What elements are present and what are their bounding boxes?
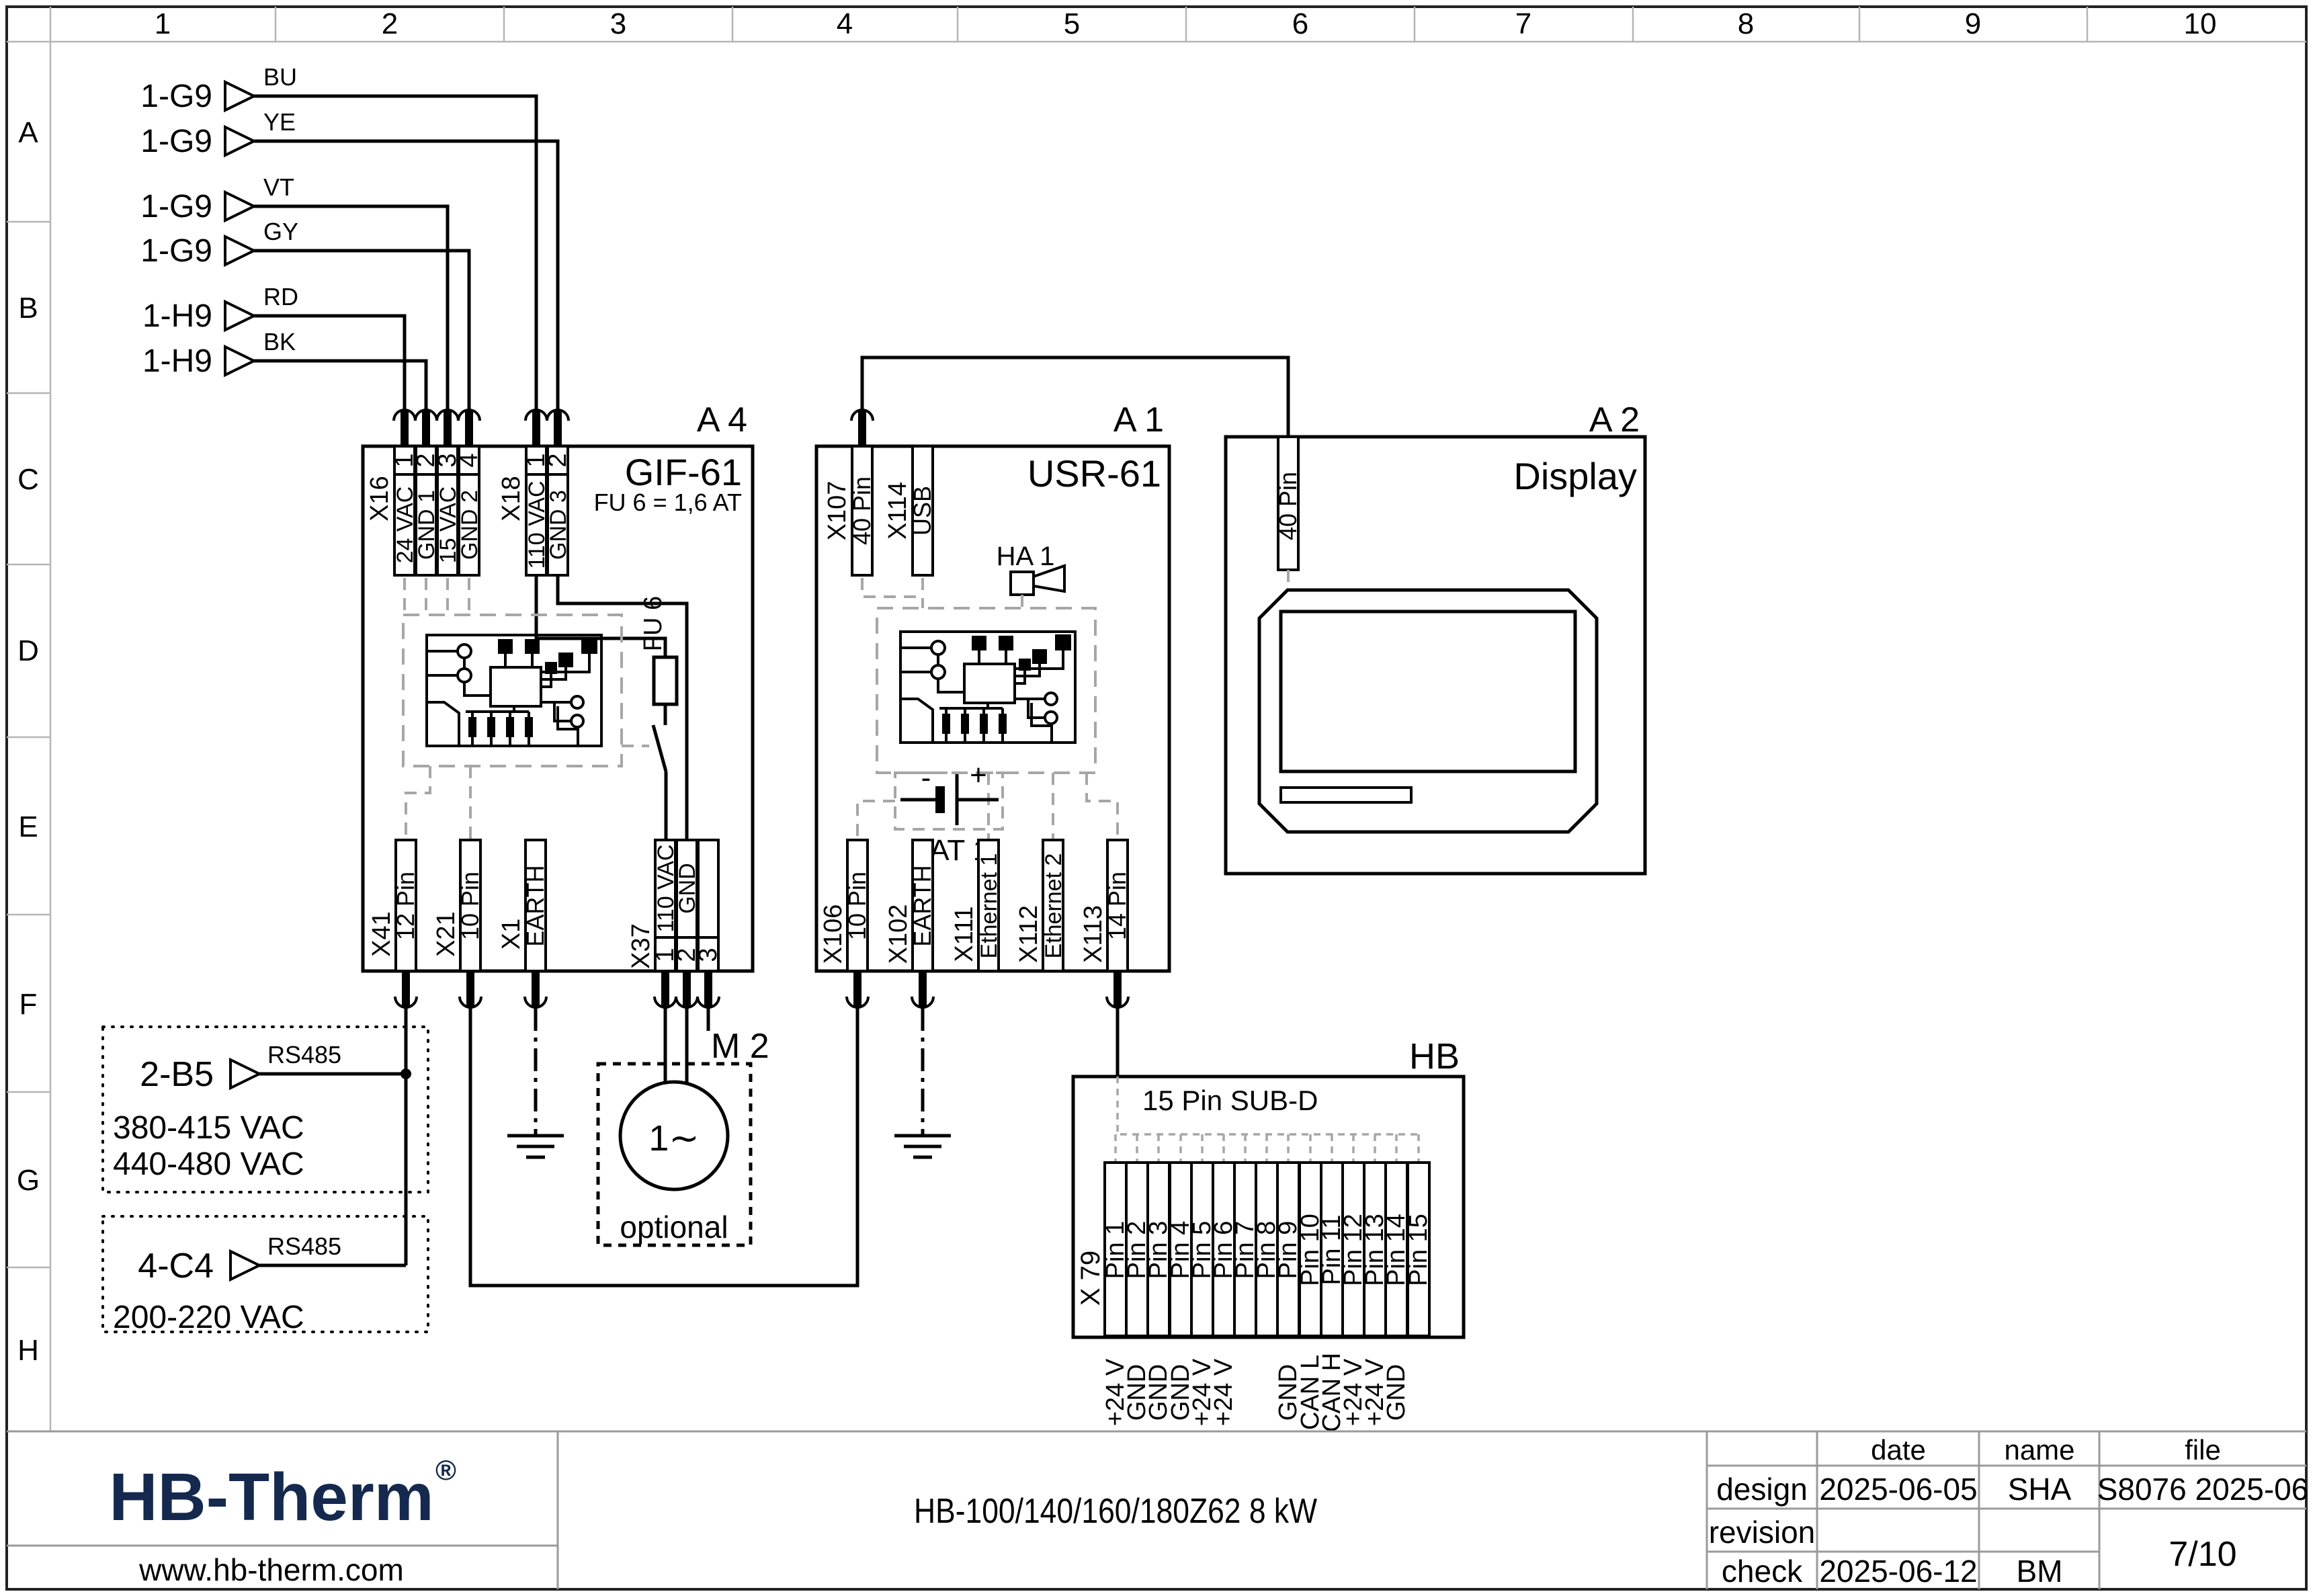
grid-row-label: H bbox=[17, 1334, 39, 1367]
connector-pin-icon bbox=[698, 971, 719, 1007]
horn-label: HA 1 bbox=[997, 542, 1055, 571]
voltage-range: 380-415 VAC bbox=[113, 1110, 304, 1146]
grid-col-label: 4 bbox=[837, 7, 853, 40]
connector-label: 40 Pin bbox=[1274, 472, 1302, 540]
col-header-file: file bbox=[2185, 1434, 2221, 1466]
drawing-title: HB-100/140/160/180Z62 8 kW bbox=[914, 1492, 1317, 1531]
signal-inputs: 1-G9 BU 1-G9 YE 1-G9 VT 1-G9 GY 1-H9 RD bbox=[140, 63, 558, 410]
voltage-range: 440-480 VAC bbox=[113, 1146, 304, 1182]
company-logo: HB-Therm ® bbox=[109, 1454, 456, 1535]
connector-x41: X41 12 Pin bbox=[368, 840, 419, 971]
signal-arrow-icon bbox=[225, 82, 254, 110]
connector-pin-icon bbox=[547, 410, 569, 446]
battery-plus: + bbox=[970, 759, 987, 792]
connector-x21: X21 10 Pin bbox=[432, 840, 484, 971]
signal-arrow-icon bbox=[225, 302, 254, 330]
block-ref: A 1 bbox=[1113, 401, 1164, 439]
wire-color-label: VT bbox=[263, 173, 294, 201]
connector-label: 40 Pin bbox=[848, 476, 876, 545]
grid-row-label: A bbox=[18, 116, 38, 149]
signal-arrow-icon bbox=[225, 127, 254, 155]
block-ref: HB bbox=[1409, 1036, 1460, 1077]
signal-arrow-icon bbox=[230, 1060, 259, 1088]
connector-name: X107 bbox=[823, 481, 851, 541]
display-screen-icon bbox=[1259, 590, 1597, 832]
block-a2-display: A 2 Display 40 Pin bbox=[1226, 401, 1645, 874]
x79-signal-labels: +24 V GND GND GND +24 V +24 V GND CAN L … bbox=[1101, 1353, 1411, 1432]
grid-col-label: 7 bbox=[1515, 7, 1531, 40]
motor-ref: M 2 bbox=[711, 1027, 769, 1066]
signal-arrow-icon bbox=[225, 237, 254, 265]
grid-col-label: 8 bbox=[1738, 7, 1754, 40]
connector-pin-icon bbox=[525, 410, 547, 446]
grid-row-label: D bbox=[17, 634, 39, 667]
connector-label: 10 Pin bbox=[456, 872, 484, 940]
input-tag: 1-G9 bbox=[140, 79, 212, 114]
rs485-source-2b5: 2-B5 RS485 380-415 VAC 440-480 VAC bbox=[103, 1027, 428, 1192]
connector-label: 12 Pin bbox=[392, 872, 419, 940]
pin-label: GND 3 bbox=[546, 490, 571, 560]
connector-x18: X18 1 2 110 VAC GND 3 bbox=[497, 446, 572, 575]
connector-pin-icon bbox=[655, 971, 676, 1007]
horn-icon bbox=[1011, 572, 1034, 595]
connector-label: 14 Pin bbox=[1103, 872, 1131, 940]
block-hb-subd: HB 15 Pin SUB-D X 79 Pin 1 Pin 2 Pin 3 P… bbox=[1073, 1036, 1464, 1432]
earth-ground-icon bbox=[894, 1136, 951, 1157]
input-tag: 1-G9 bbox=[140, 189, 212, 224]
grid-col-label: 5 bbox=[1064, 7, 1080, 40]
pin-label: GND bbox=[675, 863, 700, 914]
grid-row-label: C bbox=[17, 463, 39, 496]
wire-color-label: GY bbox=[263, 218, 298, 245]
motor-m2: M 2 1∼ optional bbox=[598, 1027, 769, 1245]
connector-name: X18 bbox=[497, 476, 525, 521]
connector-label: Ethernet 2 bbox=[1041, 853, 1066, 959]
pcb-icon bbox=[427, 635, 601, 746]
grid-row-label: E bbox=[18, 810, 38, 843]
subd-label: 15 Pin SUB-D bbox=[1142, 1085, 1318, 1116]
grid-row-label: B bbox=[18, 292, 38, 325]
battery-icon bbox=[935, 786, 945, 813]
check-date: 2025-06-12 bbox=[1819, 1554, 1977, 1589]
signal-arrow-icon bbox=[225, 192, 254, 220]
pin-number: 3 bbox=[694, 948, 722, 962]
bus-label: RS485 bbox=[267, 1041, 341, 1068]
motor-phase: 1∼ bbox=[648, 1118, 699, 1159]
check-name: BM bbox=[2017, 1554, 2063, 1589]
earth-ground-icon bbox=[507, 1136, 564, 1157]
connector-pin-icon bbox=[437, 410, 458, 446]
signal-arrow-icon bbox=[225, 347, 254, 375]
connector-pin-icon bbox=[851, 410, 873, 446]
page-frame bbox=[7, 7, 2306, 1589]
grid-col-label: 1 bbox=[155, 7, 171, 40]
connector-pin-icon bbox=[1107, 971, 1128, 1007]
block-a1-usr61: A 1 USR-61 X107 40 Pin X114 USB HA 1 bbox=[816, 358, 1288, 1007]
connector-label: EARTH bbox=[521, 865, 549, 946]
col-header-name: name bbox=[2004, 1434, 2074, 1466]
connector-x107: X107 40 Pin bbox=[823, 446, 876, 575]
pcb-a1 bbox=[877, 608, 1095, 773]
input-tag: 1-H9 bbox=[142, 343, 212, 379]
grid-col-label: 9 bbox=[1965, 7, 1981, 40]
connector-x79-pins: Pin 1 Pin 2 Pin 3 Pin 4 Pin 5 Pin 6 Pin … bbox=[1101, 1163, 1433, 1336]
block-ref: A 4 bbox=[697, 401, 747, 439]
connector-x16: X16 1 2 3 4 24 VAC GND 1 15 VAC GND 2 bbox=[366, 446, 483, 575]
connector-name: X16 bbox=[366, 476, 394, 521]
wire-color-label: YE bbox=[263, 108, 296, 136]
connector-x1: X1 EARTH bbox=[497, 840, 549, 971]
connector-pin-icon bbox=[912, 971, 933, 1007]
grid-row-headers: A B C D E F G H bbox=[17, 116, 40, 1367]
connector-x114: X114 USB bbox=[884, 446, 936, 575]
grid-col-label: 6 bbox=[1292, 7, 1308, 40]
block-a4-gif61: A 4 GIF-61 FU 6 = 1,6 AT X16 1 2 3 4 24 … bbox=[363, 401, 753, 1007]
col-header-date: date bbox=[1871, 1434, 1926, 1466]
title-block: HB-Therm ® www.hb-therm.com HB-100/140/1… bbox=[7, 1431, 2308, 1589]
grid-col-label: 3 bbox=[610, 7, 626, 40]
schematic-page: 1 2 3 4 5 6 7 8 9 10 A B C D E F G H 1-G… bbox=[0, 0, 2313, 1596]
pcb-icon bbox=[900, 632, 1075, 743]
horn-ha1: HA 1 bbox=[997, 542, 1064, 595]
connector-pin-icon bbox=[460, 971, 481, 1007]
signal-label: +24 V bbox=[1210, 1358, 1238, 1426]
input-tag: 1-G9 bbox=[140, 124, 212, 159]
block-name: Display bbox=[1513, 455, 1637, 497]
logo-reg-mark: ® bbox=[435, 1454, 456, 1486]
battery-minus: - bbox=[921, 761, 931, 794]
input-tag: 1-G9 bbox=[140, 233, 212, 269]
page-number: 7/10 bbox=[2169, 1535, 2236, 1574]
wire-color-label: BU bbox=[263, 63, 297, 91]
logo-text: HB-Therm bbox=[109, 1460, 433, 1535]
signal-arrow-icon bbox=[230, 1251, 259, 1279]
wire-color-label: RD bbox=[263, 283, 298, 310]
connector-label: EARTH bbox=[909, 865, 936, 946]
row-label-design: design bbox=[1716, 1472, 1808, 1507]
pin-number: 4 bbox=[455, 453, 483, 467]
connector-pin-icon bbox=[395, 971, 417, 1007]
connector-x106: X106 10 Pin bbox=[819, 840, 871, 971]
input-tag: 1-H9 bbox=[142, 298, 212, 334]
connector-pin-icon bbox=[847, 971, 868, 1007]
schematic-canvas: 1 2 3 4 5 6 7 8 9 10 A B C D E F G H 1-G… bbox=[0, 0, 2313, 1596]
file-value: S8076 2025-06 bbox=[2097, 1472, 2309, 1507]
fuse-icon bbox=[654, 657, 677, 704]
connector-pin-icon bbox=[415, 410, 437, 446]
connector-pin-icon bbox=[525, 971, 546, 1007]
block-name: USR-61 bbox=[1027, 452, 1161, 495]
row-label-revision: revision bbox=[1709, 1515, 1816, 1550]
block-name: GIF-61 bbox=[625, 451, 742, 493]
input-1h9-bk: 1-H9 BK bbox=[142, 328, 426, 410]
bus-label: RS485 bbox=[267, 1232, 341, 1260]
connector-x112: X112 Ethernet 2 bbox=[1015, 840, 1066, 971]
connector-name: X114 bbox=[884, 482, 912, 540]
connector-pin-icon bbox=[458, 410, 480, 446]
fuse-label: FU 6 bbox=[639, 596, 667, 651]
pin-label: GND 2 bbox=[457, 490, 482, 560]
block-ref: A 2 bbox=[1589, 401, 1640, 439]
rs485-source-4c4: 4-C4 RS485 200-220 VAC bbox=[103, 1216, 428, 1335]
source-tag: 4-C4 bbox=[138, 1247, 214, 1286]
grid-col-label: 2 bbox=[382, 7, 398, 40]
connector-label: 10 Pin bbox=[843, 872, 871, 940]
connector-label: Ethernet 1 bbox=[976, 853, 1002, 959]
grid-col-label: 10 bbox=[2184, 7, 2217, 40]
pin-label: Pin 15 bbox=[1404, 1214, 1433, 1286]
connector-pin-icon bbox=[394, 410, 415, 446]
row-label-check: check bbox=[1722, 1554, 1803, 1589]
source-tag: 2-B5 bbox=[140, 1055, 214, 1094]
connector-name: X112 bbox=[1015, 905, 1043, 963]
connector-x37: X37 110 VAC GND 1 2 3 bbox=[627, 840, 722, 971]
design-name: SHA bbox=[2008, 1472, 2072, 1507]
wire-color-label: BK bbox=[263, 328, 296, 355]
connector-name: X111 bbox=[950, 906, 978, 962]
signal-label: GND bbox=[1382, 1364, 1411, 1421]
connector-x113: X113 14 Pin bbox=[1079, 840, 1131, 971]
switch-icon bbox=[653, 725, 666, 840]
grid-row-label: G bbox=[17, 1164, 40, 1197]
fuse-note: FU 6 = 1,6 AT bbox=[594, 489, 742, 516]
design-date: 2025-06-05 bbox=[1819, 1472, 1977, 1507]
optional-note: optional bbox=[620, 1210, 728, 1245]
connector-label: USB bbox=[909, 486, 936, 536]
connector-pin-icon bbox=[676, 971, 698, 1007]
grid-row-label: F bbox=[19, 988, 38, 1021]
voltage-range: 200-220 VAC bbox=[113, 1300, 304, 1335]
website: www.hb-therm.com bbox=[138, 1552, 404, 1587]
pin-number: 2 bbox=[544, 453, 572, 467]
